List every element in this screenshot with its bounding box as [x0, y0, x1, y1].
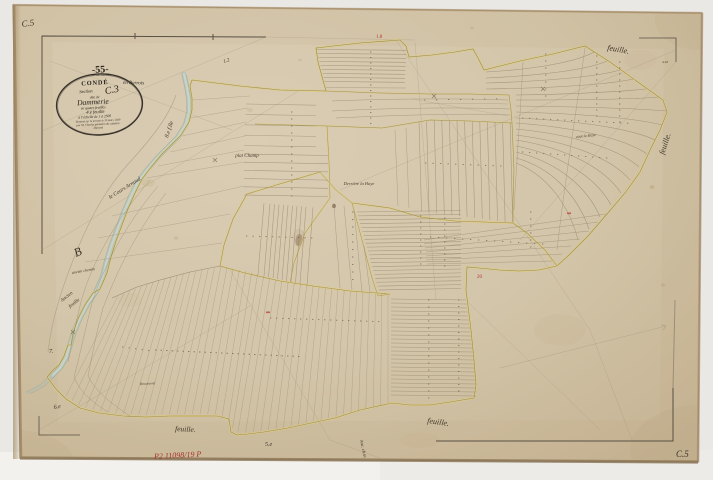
svg-text:Brousseval: Brousseval — [140, 381, 156, 386]
svg-text:Section: Section — [79, 88, 93, 94]
svg-text:Durand: Durand — [92, 125, 103, 130]
svg-text:7.: 7. — [49, 349, 54, 355]
svg-text:feuille.: feuille. — [175, 424, 196, 434]
svg-text:6.e: 6.e — [53, 404, 61, 411]
svg-text:plat Champ: plat Champ — [234, 154, 259, 159]
svg-text:C.5: C.5 — [676, 449, 689, 459]
svg-text:1.8: 1.8 — [376, 35, 383, 40]
svg-text:20: 20 — [477, 275, 483, 280]
svg-text:5.e: 5.e — [265, 442, 273, 448]
svg-text:4.10: 4.10 — [662, 60, 668, 64]
svg-text:en Barrois: en Barrois — [123, 81, 144, 87]
svg-text:Derrière la Haye: Derrière la Haye — [343, 181, 375, 186]
svg-text:C.5: C.5 — [21, 17, 36, 29]
